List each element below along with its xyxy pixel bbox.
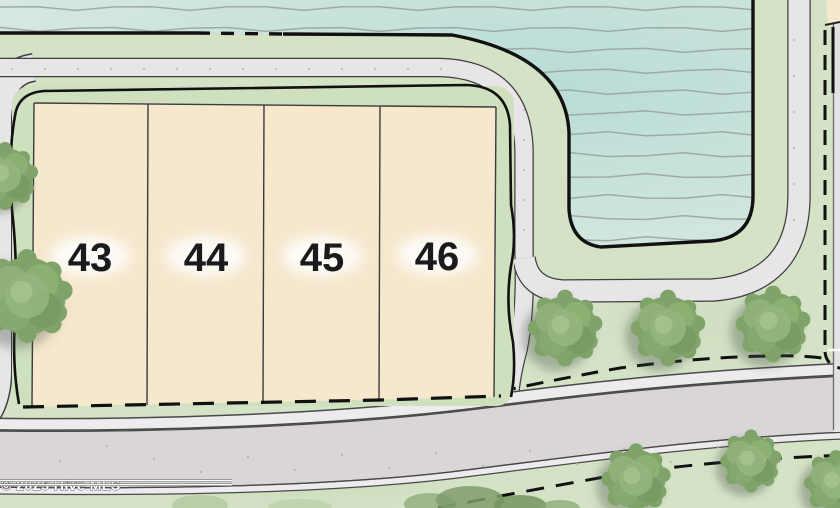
lot-44-label: 44: [184, 236, 229, 280]
site-plan-canvas: 43 44 45 46 © 2025 Hive MLS: [0, 0, 840, 508]
lot-46-label: 46: [415, 235, 460, 279]
lot-43-label: 43: [68, 236, 113, 280]
lots-block: 43 44 45 46: [11, 85, 515, 407]
adjacent-lot-corner: [826, 0, 840, 24]
site-plan-map: 43 44 45 46 © 2025 Hive MLS: [0, 0, 840, 508]
lot-45-label: 45: [300, 236, 345, 280]
